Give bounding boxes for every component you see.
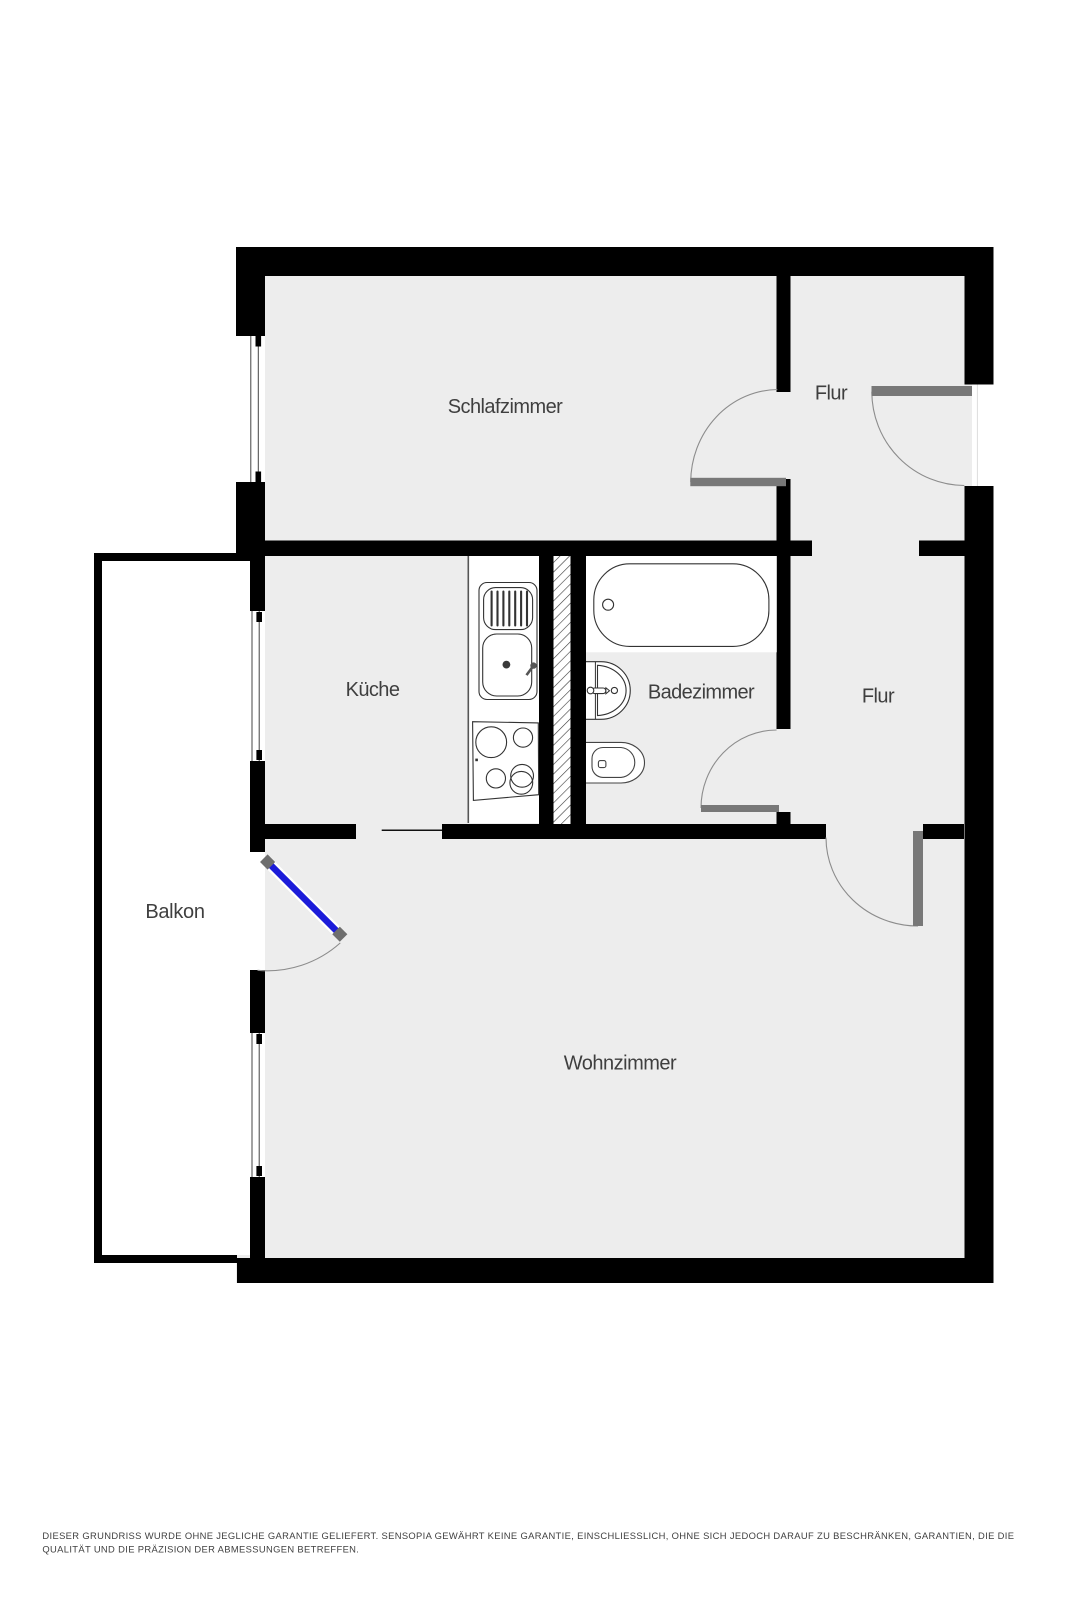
svg-text:Flur: Flur: [815, 383, 848, 405]
svg-text:DIESER GRUNDRISS WURDE OHNE JE: DIESER GRUNDRISS WURDE OHNE JEGLICHE GAR…: [42, 1530, 1014, 1541]
svg-text:Badezimmer: Badezimmer: [648, 682, 755, 704]
svg-text:Balkon: Balkon: [145, 901, 204, 923]
svg-text:QUALITÄT UND DIE PRÄZISION DER: QUALITÄT UND DIE PRÄZISION DER ABMESSUNG…: [42, 1543, 359, 1554]
svg-text:Küche: Küche: [346, 679, 400, 701]
svg-text:Wohnzimmer: Wohnzimmer: [564, 1053, 677, 1075]
svg-text:Flur: Flur: [862, 685, 895, 707]
svg-text:Schlafzimmer: Schlafzimmer: [448, 396, 563, 418]
